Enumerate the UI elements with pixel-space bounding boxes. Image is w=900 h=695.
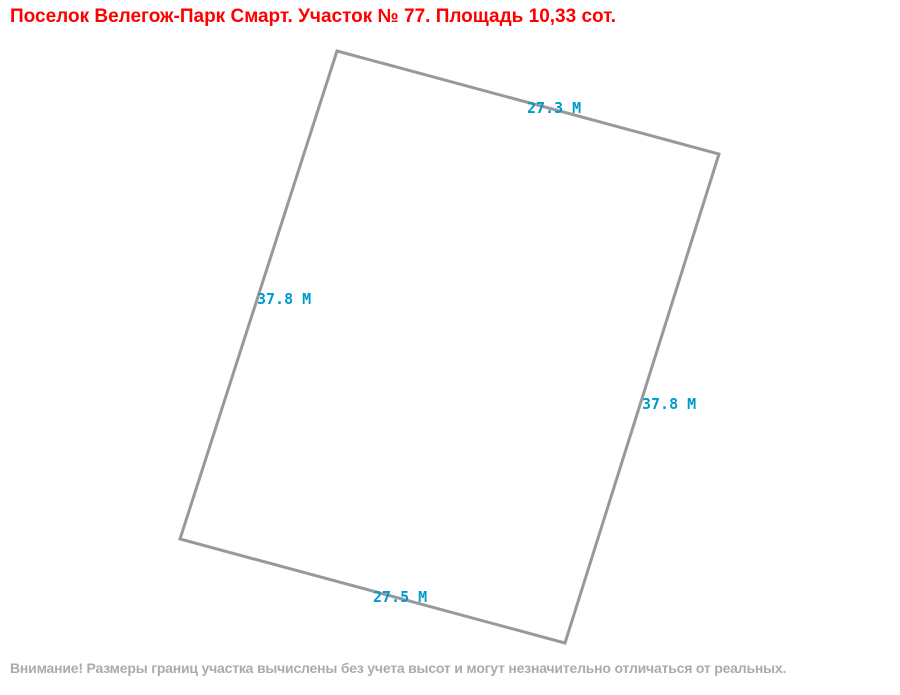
side-length-label-left: 37.8 М xyxy=(257,292,311,307)
parcel-boundary-polygon xyxy=(180,51,719,643)
parcel-plan-page: Поселок Велегож-Парк Смарт. Участок № 77… xyxy=(0,0,900,695)
side-length-label-top: 27.3 М xyxy=(527,101,581,116)
side-length-label-right: 37.8 М xyxy=(642,397,696,412)
disclaimer-text: Внимание! Размеры границ участка вычисле… xyxy=(10,660,786,676)
side-length-label-bottom: 27.5 М xyxy=(373,590,427,605)
parcel-plot xyxy=(0,0,900,695)
